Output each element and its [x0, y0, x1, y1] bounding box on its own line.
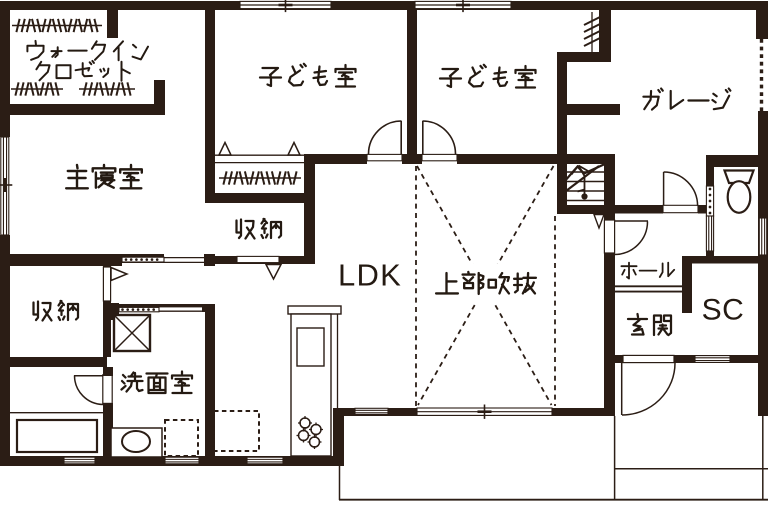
svg-text:LDK: LDK — [338, 258, 402, 293]
svg-text:SC: SC — [702, 294, 745, 327]
